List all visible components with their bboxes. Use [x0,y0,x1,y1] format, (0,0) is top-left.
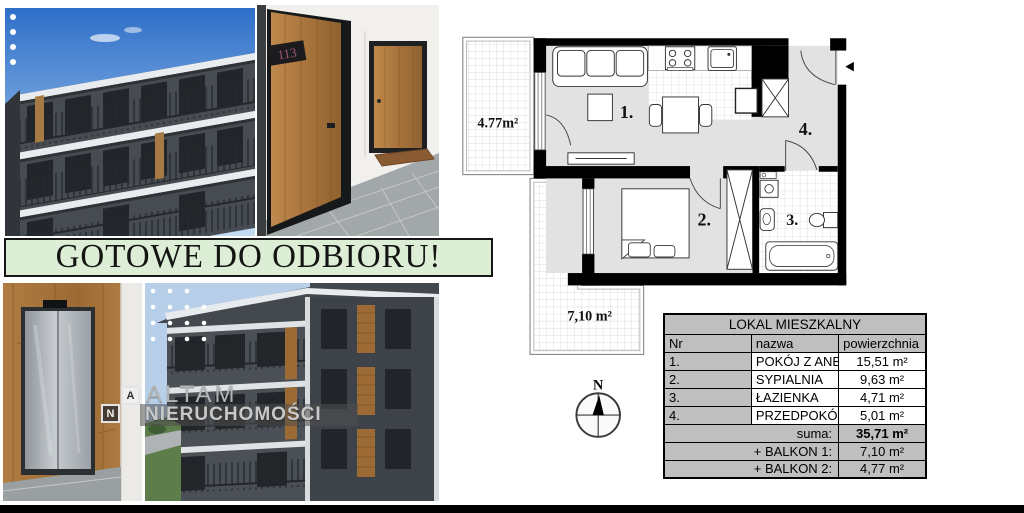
table-row: 2. SYPIALNIA 9,63 m² [664,370,926,388]
watermark-brand-subtitle: NIERUCHOMOŚCI [145,404,322,426]
row-nr: 1. [664,352,751,370]
row-nr: 3. [664,388,751,406]
room-label-3: 3. [786,212,798,229]
logo-letter-n: N [101,404,120,423]
room-label-1: 1. [620,102,633,122]
table-row: 4. PRZEDPOKÓJ 5,01 m² [664,406,926,424]
row-area: 4,71 m² [839,388,926,406]
balkon2-label: + BALKON 2: [664,460,839,478]
balcony-door [535,72,545,150]
stove-icon [665,47,694,71]
boiler-dial [762,173,766,177]
sofa-icon [553,47,648,87]
col-header-area: powierzchnia [839,334,926,352]
row-nr: 2. [664,370,751,388]
agency-watermark: A N ALTAM NIERUCHOMOŚCI [100,383,358,427]
sum-value: 35,71 m² [839,424,926,442]
bedroom-window [583,189,593,254]
bottom-black-bar [0,505,1024,513]
table-row: 1. POKÓJ Z ANEKSEM 15,51 m² [664,352,926,370]
balkon1-label: + BALKON 1: [664,442,839,460]
row-area: 5,01 m² [839,406,926,424]
cloud [124,27,142,33]
door-number: 113 [277,45,298,63]
ready-banner: GOTOWE DO ODBIORU! [4,238,493,277]
table-row: 3. ŁAZIENKA 4,71 m² [664,388,926,406]
col-header-name: nazwa [751,334,838,352]
row-nr: 4. [664,406,751,424]
row-name: ŁAZIENKA [751,388,838,406]
wardrobe-hall [762,79,789,117]
tv-stand-icon [568,153,634,164]
compass: N [575,378,620,438]
building-side-wall [5,90,20,236]
row-area: 9,63 m² [839,370,926,388]
table-balkon2-row: + BALKON 2: 4,77 m² [664,460,926,478]
row-name: SYPIALNIA [751,370,838,388]
real-estate-listing-graphic: 113 GOTOWE DO ODBIORU! [0,0,1024,513]
wood-slat-accent [155,132,164,180]
photo-building-exterior [5,8,255,236]
table-title: LOKAL MIESZKALNY [664,314,926,334]
sink-icon [708,47,736,71]
balcony-top-left: 4.77m² [463,37,534,174]
table-sum-row: suma: 35,71 m² [664,424,926,442]
row-name: PRZEDPOKÓJ [751,406,838,424]
balcony-bottom-label: 7,10 m² [567,308,611,324]
compass-north-label: N [593,378,604,394]
balkon2-value: 4,77 m² [839,460,926,478]
area-table: LOKAL MIESZKALNY Nr nazwa powierzchnia 1… [663,313,927,479]
photo-corridor-doors: 113 [257,5,439,236]
logo-letter-a: A [121,386,140,405]
coffee-table-icon [588,94,613,121]
row-area: 15,51 m² [839,352,926,370]
table-header-row: Nr nazwa powierzchnia [664,334,926,352]
room-label-2: 2. [697,210,710,230]
kitchen-counter [648,46,751,71]
wardrobe-column [727,170,753,269]
door-handle [377,99,381,103]
toilet-bowl [809,213,824,226]
col-header-nr: Nr [664,334,751,352]
elevator-display [43,300,67,308]
balcony-top-left-label: 4.77m² [477,115,518,131]
washing-machine-icon [760,180,778,197]
toilet-tank [824,212,838,227]
row-name: POKÓJ Z ANEKSEM [751,352,838,370]
wood-slat-accent [35,95,44,143]
cloud [90,34,120,42]
room-label-4: 4. [799,119,812,139]
door-handle [327,123,335,128]
banner-text: GOTOWE DO ODBIORU! [56,239,442,277]
bath-sink-icon [760,209,774,231]
sum-label: suma: [664,424,839,442]
bed-icon [622,189,689,259]
table-balkon1-row: + BALKON 1: 7,10 m² [664,442,926,460]
balkon1-value: 7,10 m² [839,442,926,460]
fridge-icon [735,88,757,113]
wooden-door-right [374,46,422,148]
entrance-arrow-icon [845,62,854,71]
